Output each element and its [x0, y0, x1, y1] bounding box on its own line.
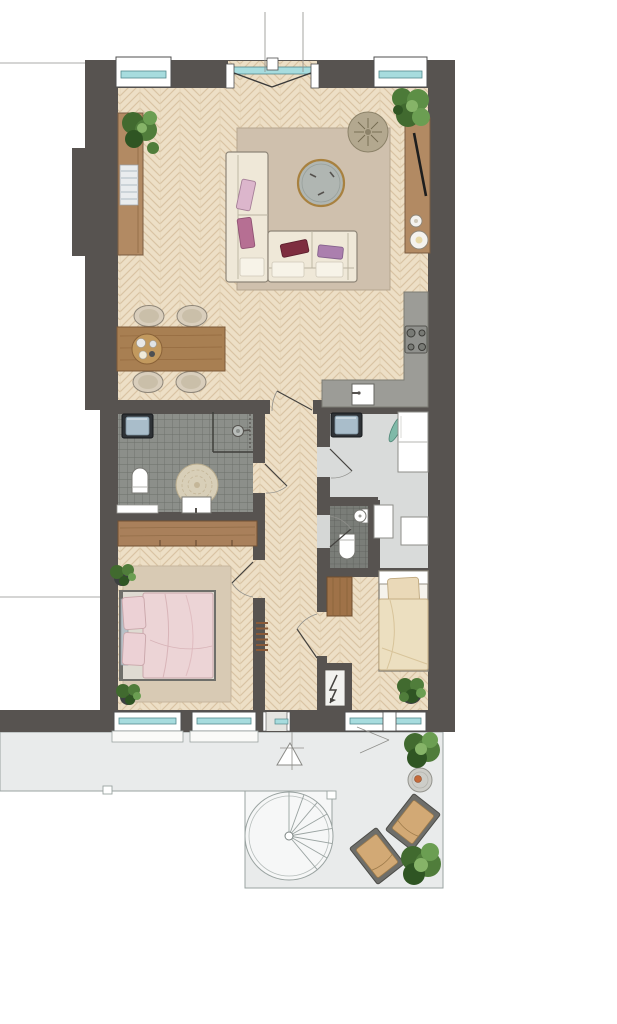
washing-machine [122, 414, 153, 438]
wall-right [428, 60, 455, 730]
boiler-unit [374, 505, 393, 538]
cup-icon [415, 776, 422, 783]
pillow [317, 245, 343, 260]
tall-cabinet [398, 412, 428, 472]
wardrobe [118, 521, 257, 546]
coffee-table [298, 160, 344, 206]
glass-pane [379, 71, 422, 78]
double-bed [119, 591, 215, 680]
wall-hall-left [253, 522, 265, 712]
wall-left-bump [72, 148, 85, 256]
pillow [122, 596, 146, 629]
tv-cabinet [405, 118, 430, 253]
terrace-door [263, 712, 290, 731]
corner-plant [392, 88, 430, 127]
glass-pane [121, 71, 166, 78]
boiler-unit [401, 517, 428, 545]
kitchen-sink [352, 384, 374, 405]
window-top-left [116, 57, 171, 87]
faucet-icon [357, 391, 360, 394]
meter-cupboard [325, 670, 345, 706]
floor-plan-canvas [0, 0, 617, 1024]
washbasin [182, 497, 211, 513]
wardrobe [327, 577, 352, 616]
window-bottom-2 [190, 712, 258, 742]
rattan-pouf [348, 112, 388, 152]
duvet [143, 593, 213, 678]
pillow [122, 632, 146, 665]
window-sill [190, 731, 258, 742]
bathroom-toilet [132, 468, 148, 493]
bath-bench [117, 505, 158, 513]
dining-chair [177, 306, 207, 327]
cooktop [405, 326, 427, 353]
seat-cushion [272, 262, 304, 277]
window-bottom-1 [112, 712, 183, 742]
washing-machine [331, 413, 362, 437]
burner-icon [408, 344, 414, 350]
dining-chair [176, 372, 206, 393]
window-top-right [374, 57, 427, 87]
burner-icon [407, 329, 415, 337]
window-mullion [383, 712, 396, 731]
fountain-sink [354, 509, 368, 523]
staircase-pole [285, 832, 293, 840]
seat-cushion [316, 262, 343, 277]
glass-pane [197, 718, 251, 724]
window-sill [112, 731, 183, 742]
spiral-staircase [245, 791, 333, 880]
hall-floor [265, 400, 317, 712]
serving-tray [132, 334, 162, 364]
terrace [0, 731, 443, 888]
glass-pane [119, 718, 176, 724]
dining-chair [134, 306, 164, 327]
duvet [379, 599, 428, 670]
magazine-stack [120, 165, 138, 205]
wall-left-upper [85, 60, 118, 410]
burner-icon [419, 344, 426, 351]
glass-pane [275, 719, 288, 724]
burner-icon [419, 330, 425, 336]
seat-cushion [240, 258, 264, 276]
terrace-side-table [408, 768, 432, 792]
dining-chair [133, 372, 163, 393]
single-bed [379, 571, 428, 671]
french-door [226, 58, 319, 88]
